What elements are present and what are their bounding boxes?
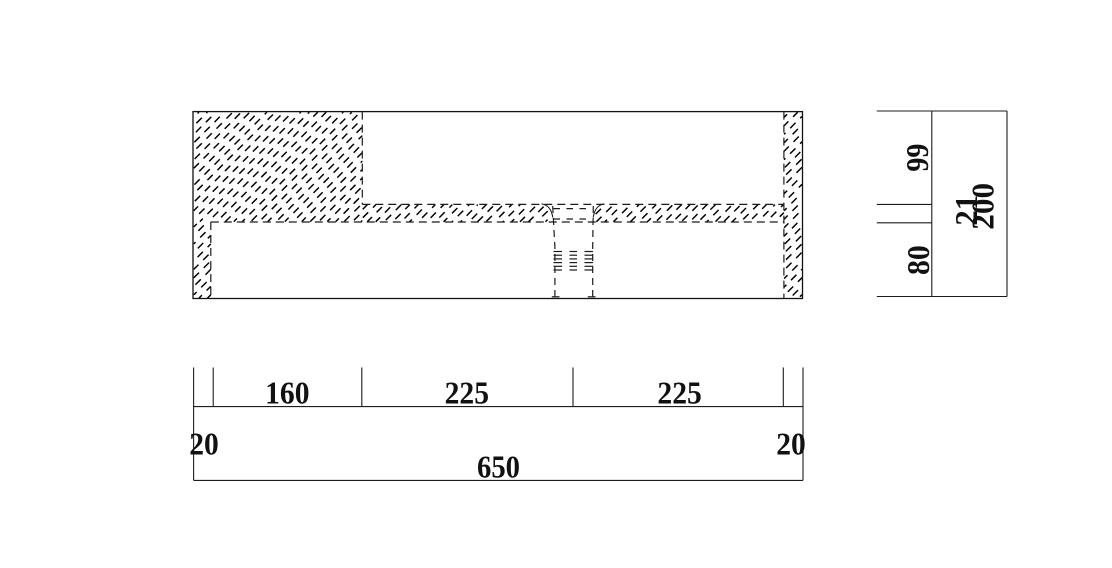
- svg-text:160: 160: [265, 375, 309, 411]
- svg-text:99: 99: [899, 144, 935, 172]
- svg-text:20: 20: [776, 426, 806, 462]
- svg-text:80: 80: [900, 245, 936, 275]
- svg-text:20: 20: [189, 426, 219, 462]
- svg-text:225: 225: [445, 375, 489, 411]
- svg-text:200: 200: [964, 183, 1000, 230]
- svg-text:650: 650: [477, 448, 520, 484]
- svg-text:225: 225: [657, 375, 701, 411]
